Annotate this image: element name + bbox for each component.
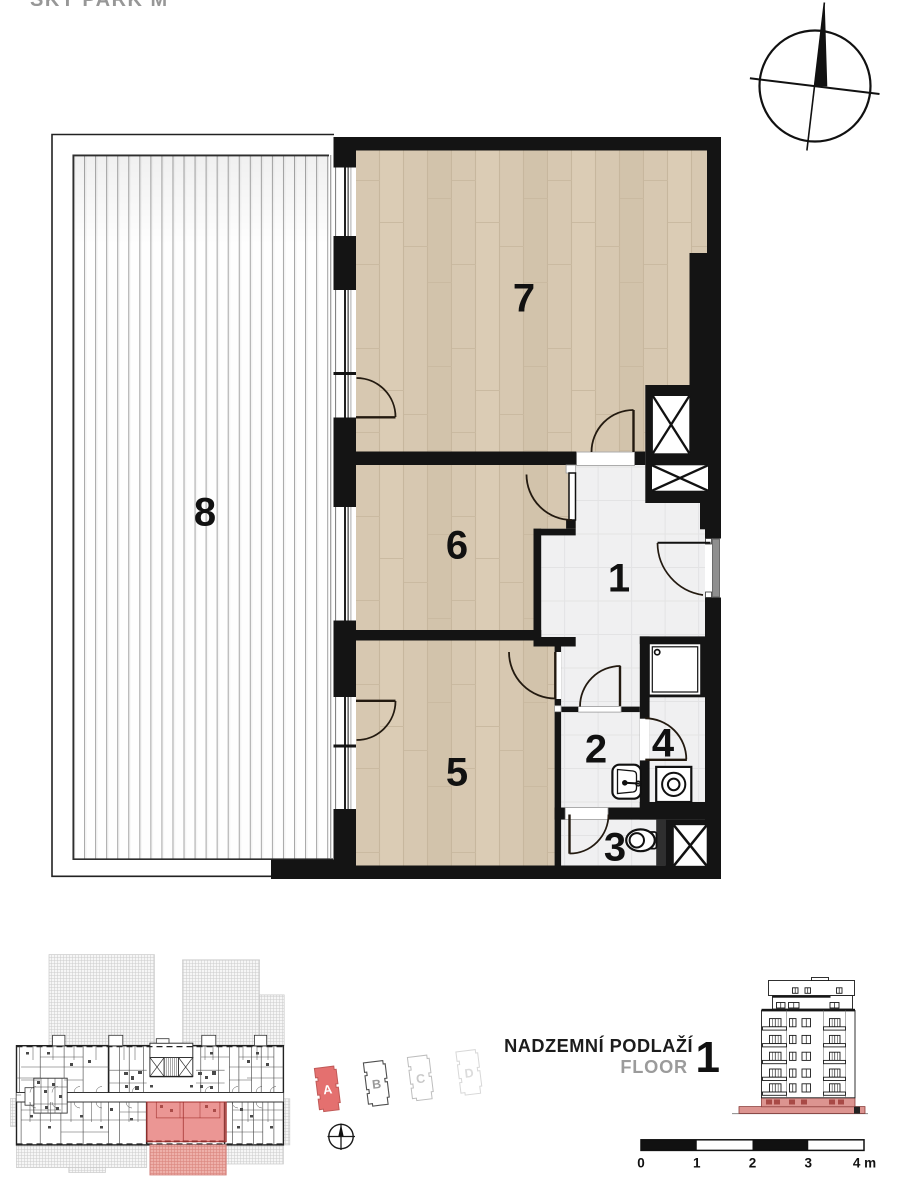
- svg-text:2: 2: [749, 1156, 757, 1171]
- svg-text:7: 7: [513, 276, 535, 320]
- svg-text:B: B: [371, 1077, 382, 1092]
- svg-text:1: 1: [608, 556, 630, 600]
- svg-text:2: 2: [585, 727, 607, 771]
- svg-text:FLOOR: FLOOR: [620, 1057, 688, 1077]
- svg-text:A: A: [322, 1082, 333, 1097]
- svg-text:4: 4: [652, 721, 675, 765]
- svg-text:4 m: 4 m: [853, 1156, 876, 1171]
- svg-text:3: 3: [804, 1156, 812, 1171]
- svg-text:1: 1: [693, 1156, 701, 1171]
- svg-text:C: C: [415, 1071, 426, 1086]
- svg-text:NADZEMNÍ PODLAŽÍ: NADZEMNÍ PODLAŽÍ: [504, 1035, 693, 1056]
- svg-text:6: 6: [446, 523, 468, 567]
- svg-text:0: 0: [637, 1156, 645, 1171]
- svg-text:3: 3: [604, 825, 626, 869]
- svg-text:8: 8: [194, 490, 216, 534]
- svg-text:D: D: [464, 1066, 475, 1081]
- svg-text:SKY PARK M: SKY PARK M: [30, 0, 169, 11]
- svg-text:1: 1: [696, 1033, 720, 1082]
- svg-text:5: 5: [446, 750, 468, 794]
